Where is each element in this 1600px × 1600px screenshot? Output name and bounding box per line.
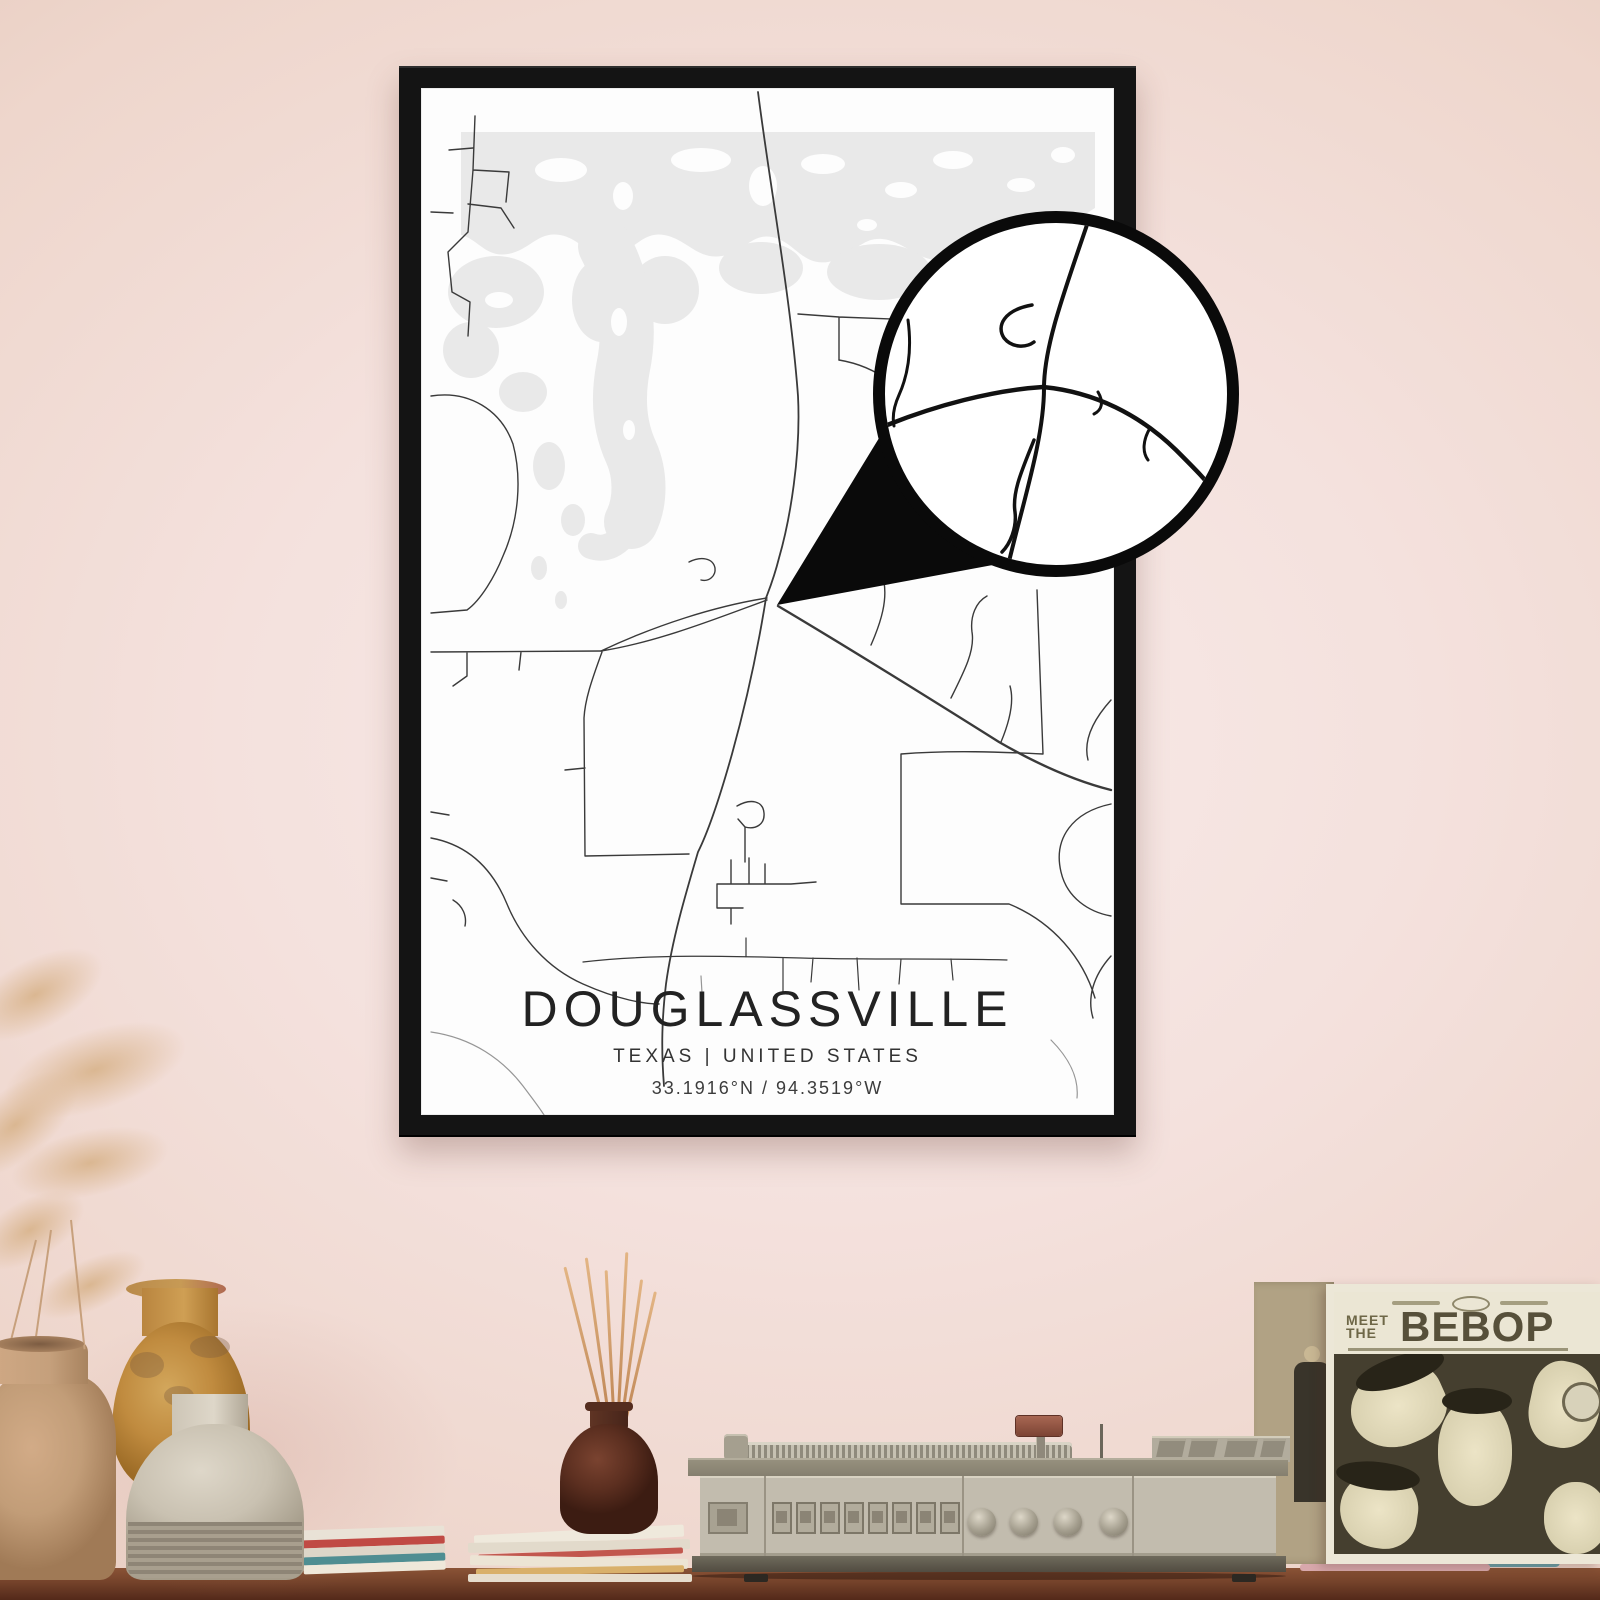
player-button [940, 1502, 960, 1534]
record-sleeve-bebop: MEET THE BEBOP [1326, 1284, 1600, 1564]
balance-knob [1054, 1508, 1082, 1536]
sleeve-illustration [1334, 1354, 1600, 1554]
player-foot [1232, 1574, 1256, 1582]
magazine-stack-center [468, 1530, 692, 1582]
panel-divider [1132, 1476, 1134, 1556]
magazine [468, 1574, 692, 1582]
player-button [868, 1502, 888, 1534]
player-base [692, 1556, 1286, 1572]
deck-key [1188, 1439, 1218, 1457]
sleeve-title: BEBOP [1400, 1306, 1554, 1348]
player-button [892, 1502, 912, 1534]
poster-title: DOUGLASSVILLE [421, 980, 1114, 1038]
antenna [1100, 1424, 1103, 1460]
tone-knob [1010, 1508, 1038, 1536]
panel-divider [764, 1476, 766, 1556]
tuner-knob [1100, 1508, 1128, 1536]
sleeve-figure-silhouette [1294, 1362, 1330, 1502]
player-button [916, 1502, 936, 1534]
lid-hinge [724, 1434, 748, 1460]
zoom-circle [879, 217, 1233, 571]
cartoon-face [1438, 1398, 1512, 1506]
map-zoom-callout [760, 196, 1252, 610]
incense-bottle [560, 1424, 658, 1534]
sleeve-badge [1562, 1382, 1600, 1422]
power-button-cap [717, 1509, 737, 1526]
sleeve-pretitle: MEET THE [1346, 1314, 1389, 1340]
magazine-stack-left [302, 1526, 445, 1575]
player-top-deck [688, 1458, 1288, 1476]
gray-vase-ribs [128, 1522, 302, 1578]
poster-coordinates: 33.1916°N / 94.3519°W [421, 1078, 1114, 1099]
tonearm-cartridge [1016, 1416, 1062, 1436]
sleeve-pretitle-line2: THE [1346, 1327, 1389, 1340]
poster-subtitle: TEXAS | UNITED STATES [421, 1046, 1114, 1068]
deck-key [1260, 1439, 1286, 1457]
incense-bottle-lip [585, 1402, 633, 1411]
volume-knob [968, 1508, 996, 1536]
tan-jug-mouth [0, 1336, 84, 1352]
player-button [772, 1502, 792, 1534]
player-button [844, 1502, 864, 1534]
loose-paper [1300, 1564, 1490, 1571]
sleeve-header: MEET THE BEBOP [1334, 1292, 1600, 1354]
sleeve-cover-art: MEET THE BEBOP [1334, 1292, 1600, 1554]
player-button [820, 1502, 840, 1534]
deck-key [1224, 1439, 1258, 1457]
player-button [796, 1502, 816, 1534]
cartoon-hair [1442, 1388, 1512, 1414]
tan-jug-vase [0, 1376, 116, 1580]
sleeve-small-print [1348, 1348, 1568, 1351]
preset-button-row [772, 1502, 960, 1534]
player-foot [744, 1574, 768, 1582]
power-button [708, 1502, 748, 1534]
player-shadow [692, 1572, 1286, 1580]
pampas-grass [0, 940, 240, 1370]
cartoon-face [1544, 1482, 1600, 1554]
room-scene: DOUGLASSVILLE TEXAS | UNITED STATES 33.1… [0, 0, 1600, 1600]
panel-divider [962, 1476, 964, 1556]
deck-key [1156, 1439, 1186, 1457]
